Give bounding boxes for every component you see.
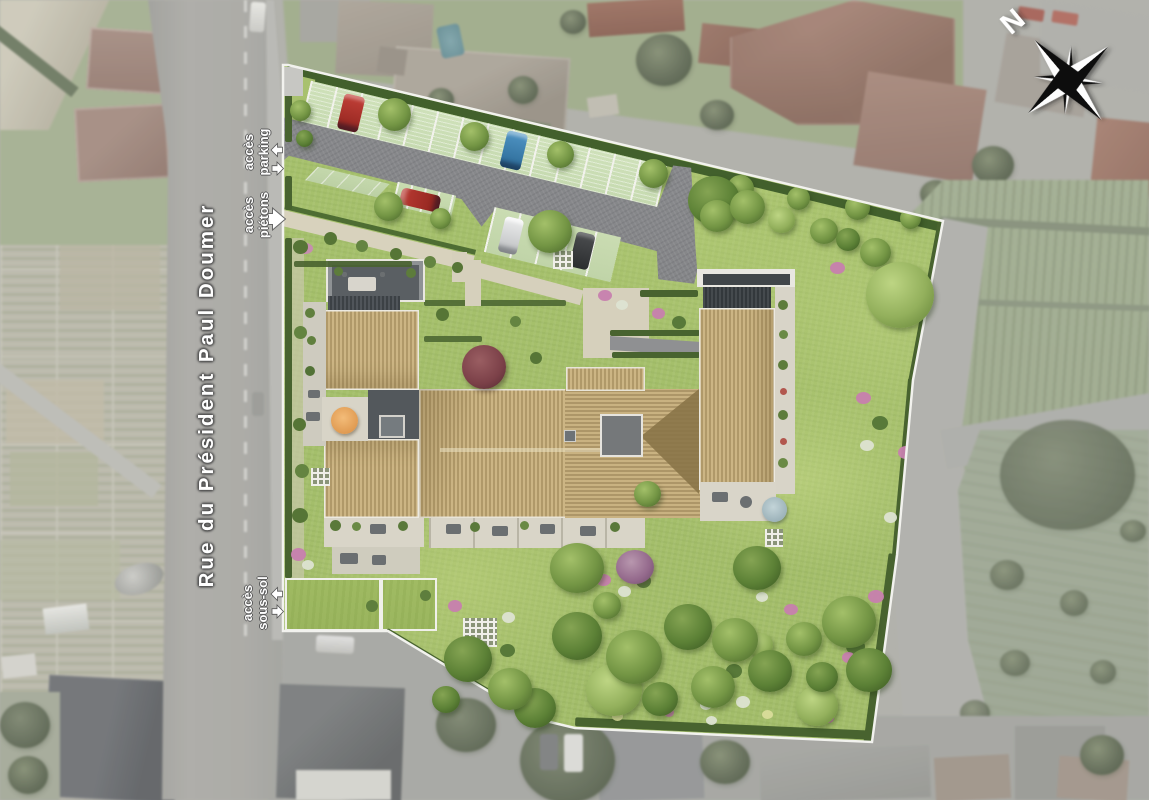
svg-text:N: N bbox=[995, 3, 1032, 41]
